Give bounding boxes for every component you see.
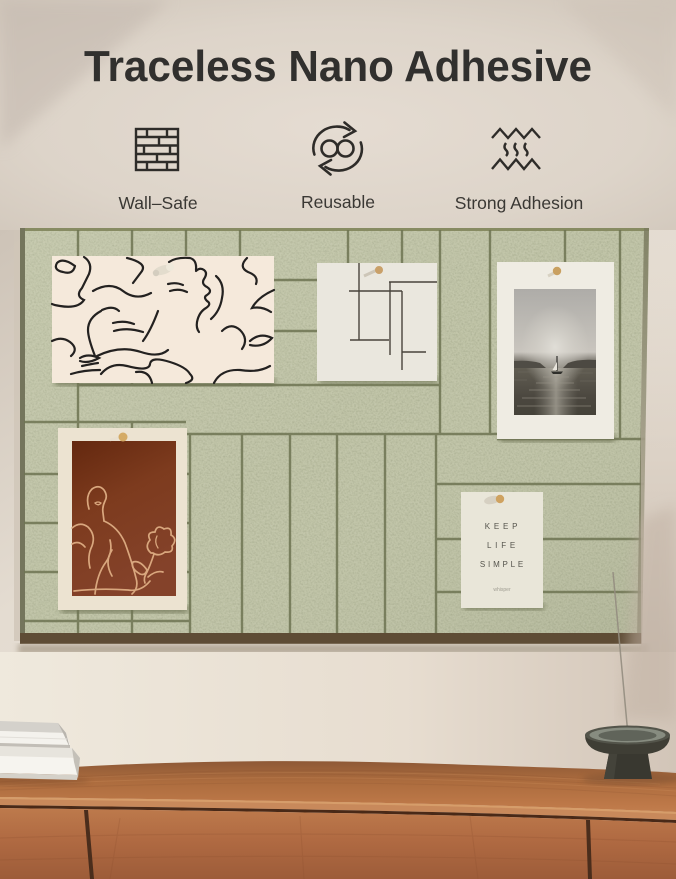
svg-text:Wall–Safe: Wall–Safe: [118, 193, 197, 213]
svg-text:Reusable: Reusable: [301, 192, 375, 212]
svg-text:Strong Adhesion: Strong Adhesion: [455, 193, 583, 213]
svg-text:SIMPLE: SIMPLE: [480, 560, 526, 569]
svg-text:LIFE: LIFE: [487, 541, 519, 550]
svg-text:KEEP: KEEP: [485, 522, 522, 531]
svg-text:Traceless Nano Adhesive: Traceless Nano Adhesive: [84, 42, 592, 91]
svg-text:whisper: whisper: [493, 587, 511, 593]
